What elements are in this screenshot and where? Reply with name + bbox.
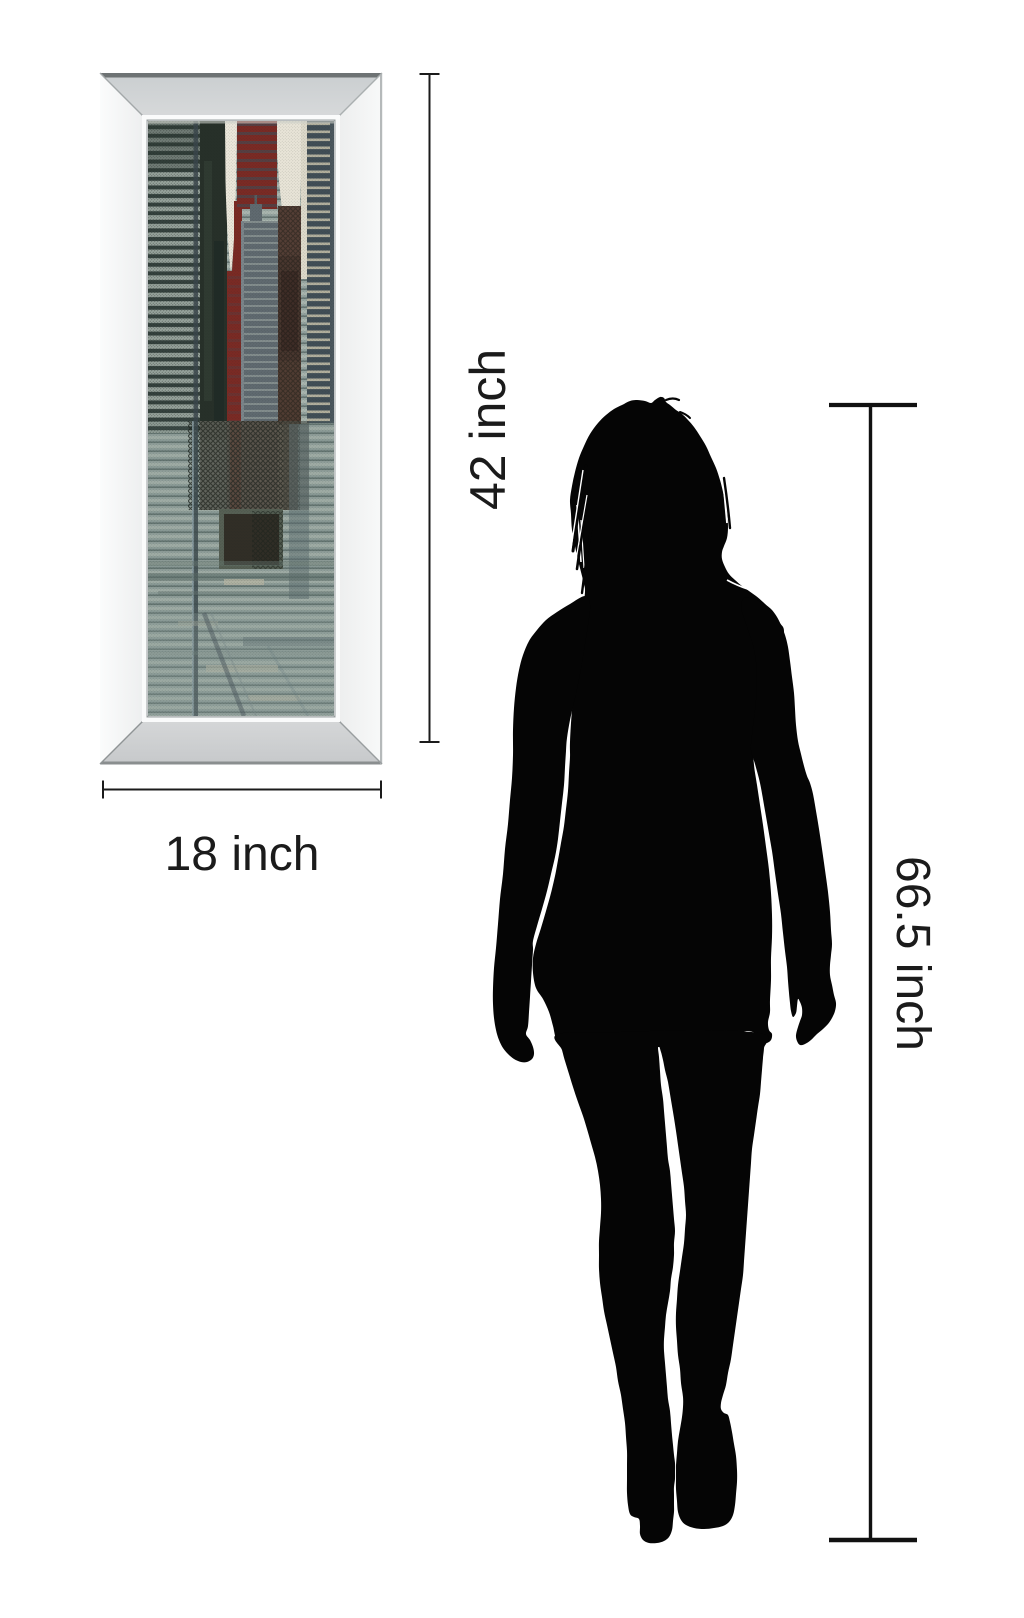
svg-text:18 inch: 18 inch [165, 828, 320, 881]
svg-text:66.5 inch: 66.5 inch [886, 856, 939, 1051]
svg-text:42 inch: 42 inch [460, 349, 516, 510]
